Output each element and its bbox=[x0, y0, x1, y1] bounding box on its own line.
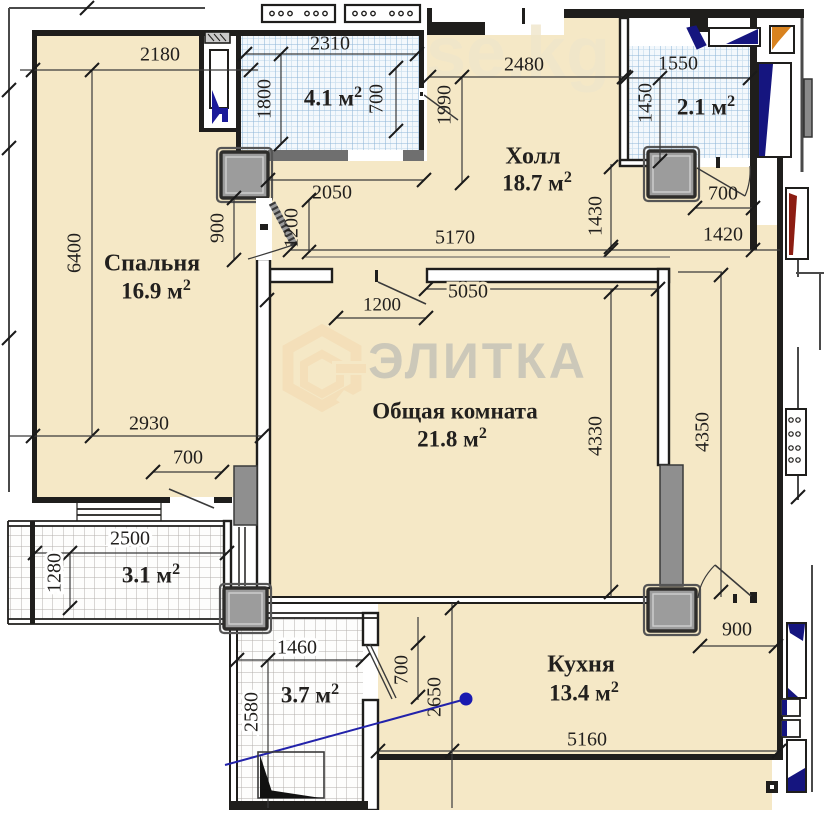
svg-text:2310: 2310 bbox=[310, 33, 350, 55]
svg-text:Спальня: Спальня bbox=[104, 251, 200, 277]
svg-text:1200: 1200 bbox=[363, 294, 401, 315]
svg-text:2930: 2930 bbox=[129, 413, 169, 435]
svg-text:4.1 м2: 4.1 м2 bbox=[304, 84, 362, 111]
svg-text:4350: 4350 bbox=[692, 412, 714, 452]
svg-text:2480: 2480 bbox=[504, 54, 544, 76]
svg-text:1200: 1200 bbox=[281, 208, 303, 248]
svg-text:2580: 2580 bbox=[241, 692, 263, 732]
svg-text:700: 700 bbox=[708, 183, 738, 205]
svg-text:5170: 5170 bbox=[435, 227, 475, 249]
svg-text:2650: 2650 bbox=[424, 677, 446, 717]
svg-text:2050: 2050 bbox=[312, 182, 352, 204]
svg-text:2500: 2500 bbox=[110, 528, 150, 550]
svg-text:13.4 м2: 13.4 м2 bbox=[549, 679, 619, 706]
svg-text:5050: 5050 bbox=[448, 281, 488, 303]
svg-text:1430: 1430 bbox=[585, 196, 607, 236]
svg-text:1280: 1280 bbox=[44, 553, 66, 593]
svg-text:16.9 м2: 16.9 м2 bbox=[121, 277, 191, 304]
svg-text:1800: 1800 bbox=[254, 79, 276, 119]
svg-text:900: 900 bbox=[722, 619, 752, 641]
svg-text:1550: 1550 bbox=[658, 53, 698, 75]
svg-text:3.7 м2: 3.7 м2 bbox=[281, 681, 339, 708]
svg-text:900: 900 bbox=[207, 213, 229, 243]
svg-text:4330: 4330 bbox=[585, 416, 607, 456]
svg-text:1990: 1990 bbox=[434, 85, 456, 125]
svg-text:700: 700 bbox=[173, 447, 203, 469]
svg-text:5160: 5160 bbox=[567, 729, 607, 751]
svg-text:1450: 1450 bbox=[635, 83, 657, 123]
svg-text:700: 700 bbox=[391, 655, 413, 685]
svg-text:2180: 2180 bbox=[140, 44, 180, 66]
svg-text:ЭЛИТКА: ЭЛИТКА bbox=[368, 333, 588, 389]
svg-text:18.7 м2: 18.7 м2 bbox=[502, 169, 572, 196]
svg-text:700: 700 bbox=[366, 84, 388, 114]
svg-text:2.1 м2: 2.1 м2 bbox=[677, 93, 735, 120]
svg-text:1420: 1420 bbox=[703, 224, 743, 246]
svg-text:6400: 6400 bbox=[64, 233, 86, 273]
svg-text:Кухня: Кухня bbox=[547, 652, 615, 678]
svg-text:Холл: Холл bbox=[505, 144, 560, 170]
svg-text:1460: 1460 bbox=[277, 637, 317, 659]
svg-text:3.1 м2: 3.1 м2 bbox=[122, 561, 180, 588]
svg-text:21.8 м2: 21.8 м2 bbox=[417, 425, 487, 452]
svg-text:Общая комната: Общая комната bbox=[372, 398, 538, 423]
